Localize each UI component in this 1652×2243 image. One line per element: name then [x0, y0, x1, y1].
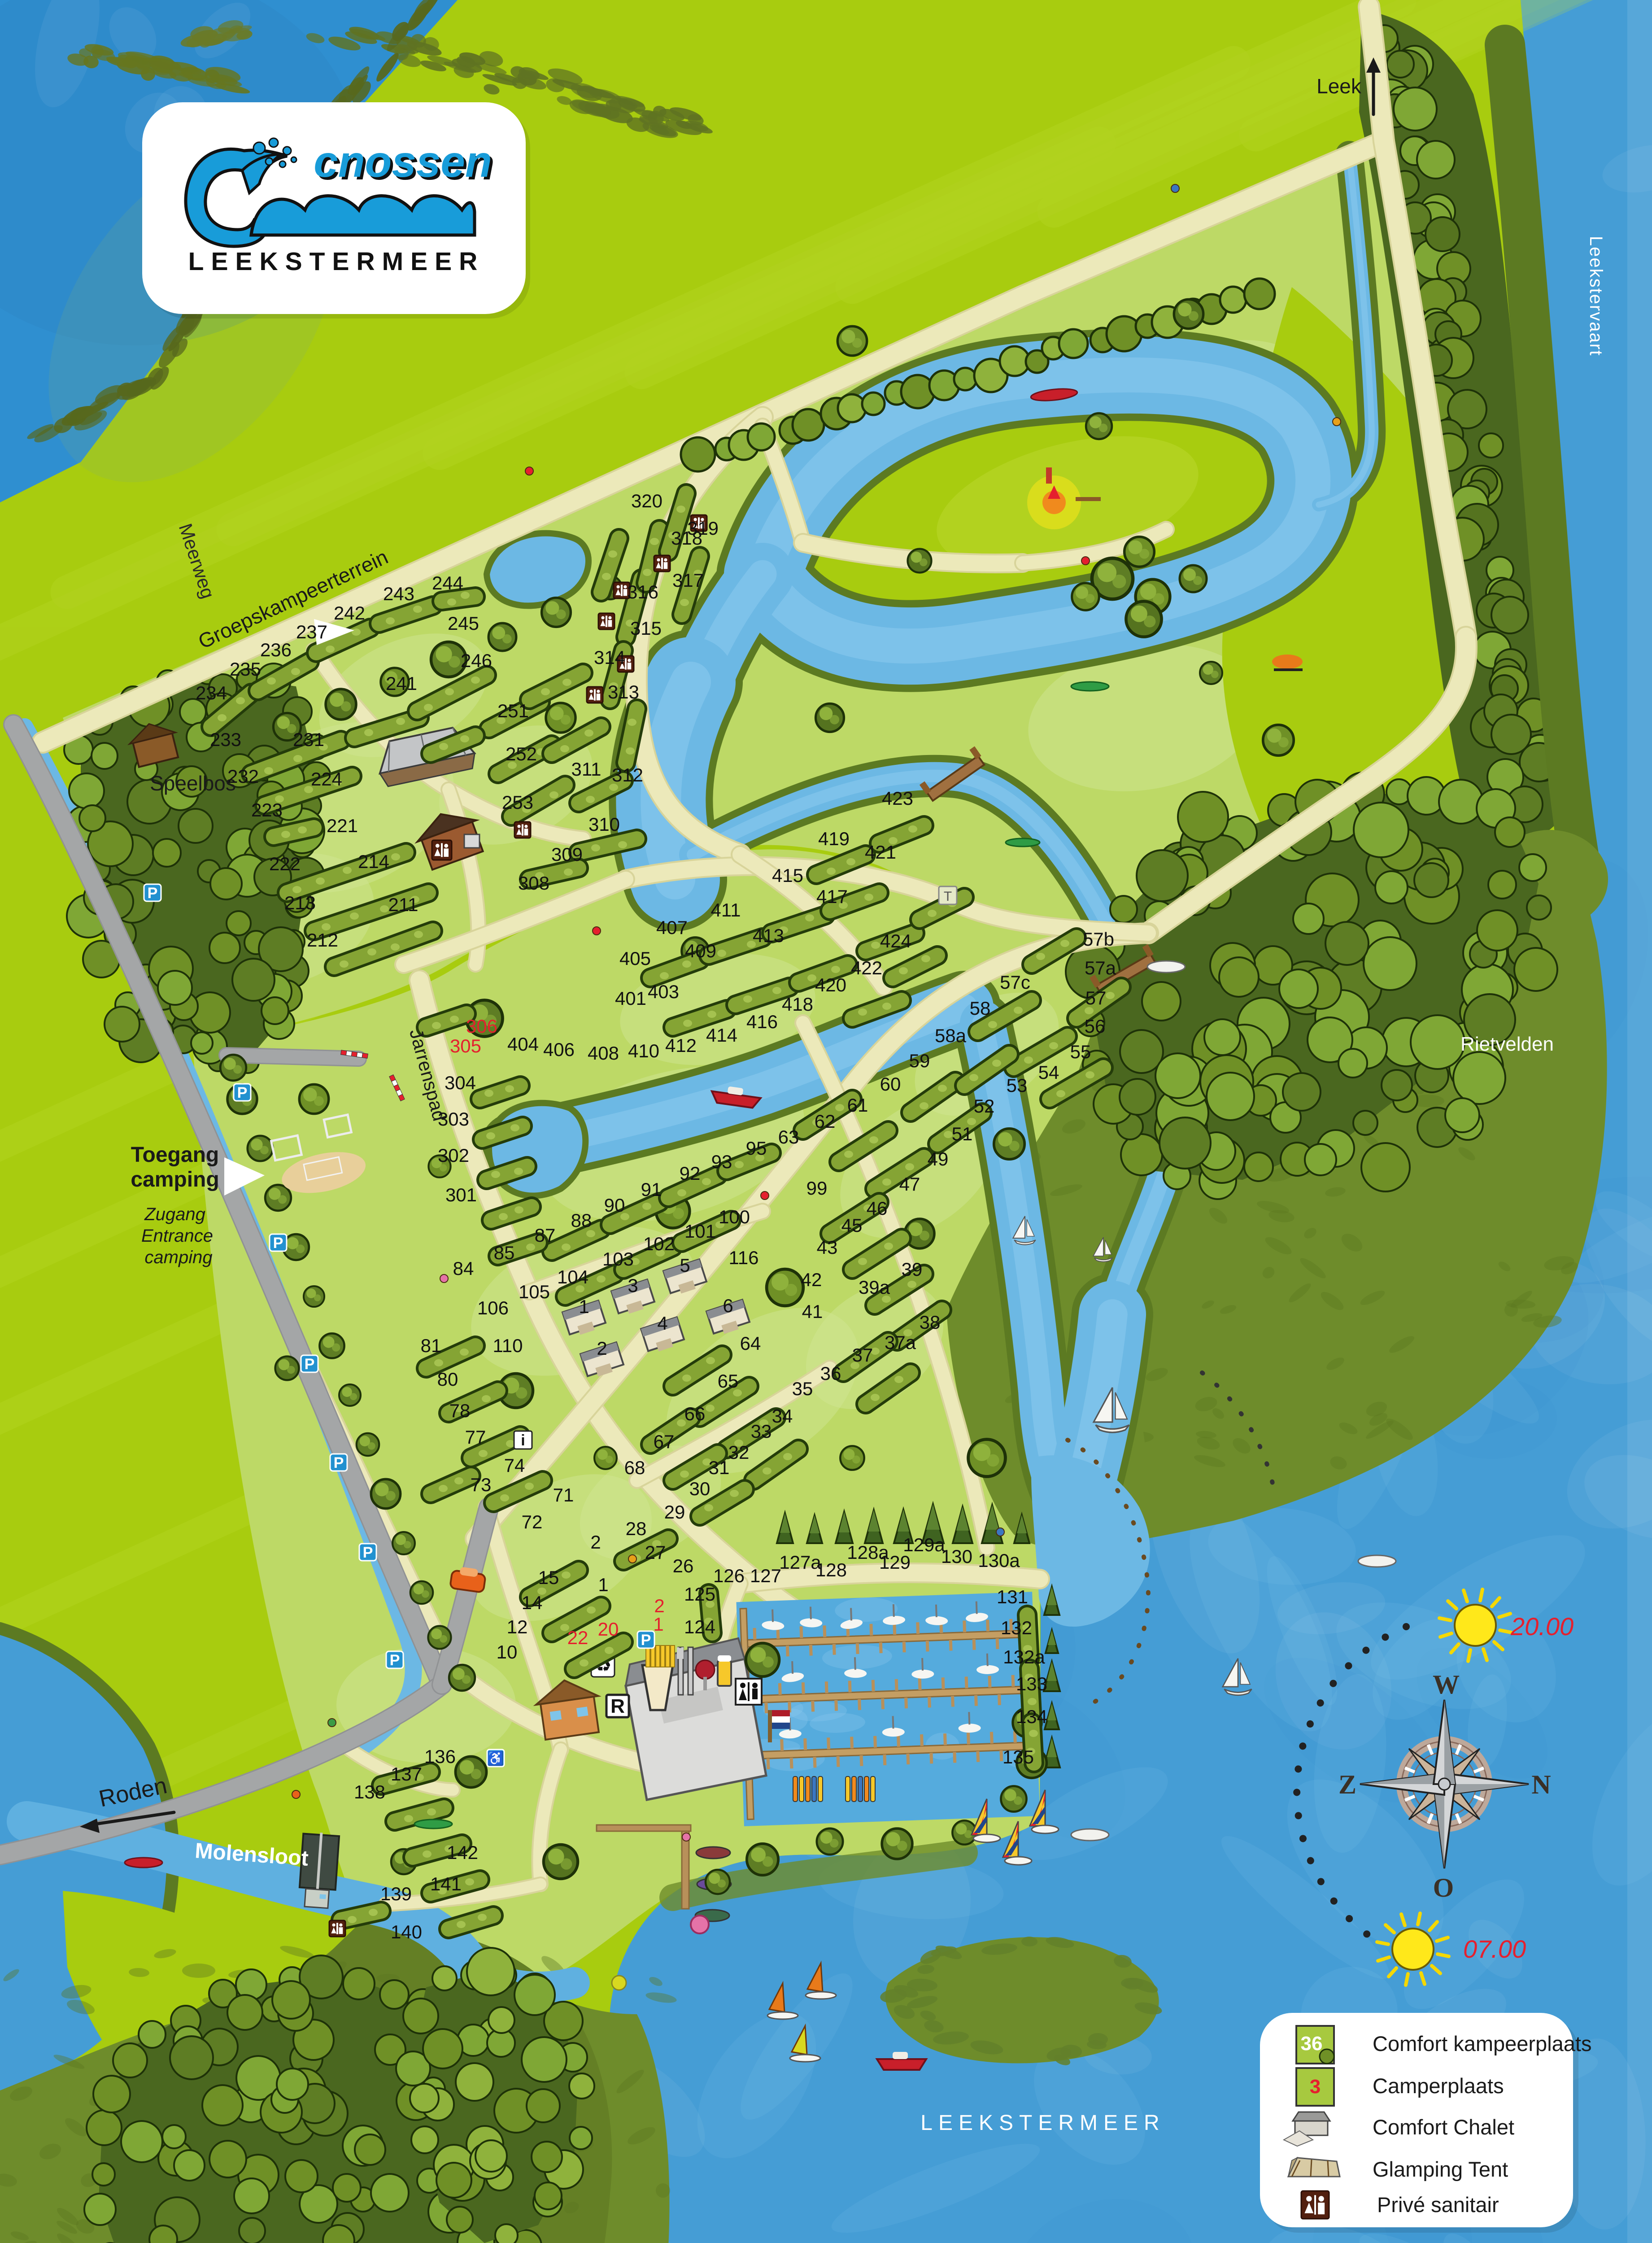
svg-text:LEEKSTERMEER: LEEKSTERMEER	[920, 2111, 1165, 2135]
svg-text:Zugang: Zugang	[144, 1204, 205, 1224]
svg-text:253: 253	[502, 792, 533, 813]
svg-text:241: 241	[386, 673, 417, 694]
svg-text:31: 31	[709, 1457, 730, 1478]
svg-text:2: 2	[654, 1595, 664, 1616]
svg-text:O: O	[1433, 1873, 1454, 1903]
svg-text:71: 71	[553, 1484, 574, 1506]
svg-text:N: N	[1531, 1770, 1551, 1799]
svg-text:416: 416	[746, 1011, 778, 1032]
svg-text:65: 65	[718, 1370, 739, 1392]
svg-text:10: 10	[497, 1641, 518, 1663]
svg-text:306: 306	[466, 1016, 497, 1037]
svg-text:135: 135	[1003, 1746, 1034, 1767]
svg-text:cnossen: cnossen	[314, 137, 492, 186]
svg-text:309: 309	[551, 844, 583, 865]
svg-text:84: 84	[453, 1258, 474, 1279]
svg-text:53: 53	[1007, 1075, 1028, 1096]
svg-text:64: 64	[740, 1333, 761, 1354]
svg-text:408: 408	[588, 1043, 619, 1064]
svg-text:214: 214	[358, 851, 389, 872]
svg-text:93: 93	[711, 1151, 732, 1172]
svg-text:137: 137	[391, 1763, 422, 1785]
svg-text:♿: ♿	[487, 1750, 504, 1766]
svg-text:camping: camping	[131, 1168, 219, 1191]
svg-text:304: 304	[445, 1072, 476, 1093]
svg-text:Toegang: Toegang	[131, 1143, 219, 1167]
svg-text:Glamping Tent: Glamping Tent	[1373, 2157, 1508, 2181]
svg-text:LEEKSTERMEER: LEEKSTERMEER	[188, 247, 485, 276]
svg-text:88: 88	[571, 1210, 592, 1231]
svg-text:Speelbos: Speelbos	[150, 772, 236, 795]
svg-text:20: 20	[598, 1619, 619, 1640]
svg-text:80: 80	[437, 1369, 458, 1390]
svg-text:58a: 58a	[935, 1025, 967, 1046]
svg-text:51: 51	[952, 1123, 973, 1144]
svg-text:78: 78	[449, 1400, 471, 1421]
svg-text:67: 67	[654, 1431, 675, 1452]
svg-text:P: P	[148, 885, 158, 902]
svg-text:105: 105	[519, 1281, 550, 1302]
svg-text:12: 12	[507, 1616, 528, 1637]
svg-text:406: 406	[543, 1039, 575, 1060]
svg-text:129a: 129a	[903, 1534, 945, 1555]
svg-text:27: 27	[645, 1542, 666, 1563]
svg-text:302: 302	[438, 1145, 469, 1166]
svg-text:74: 74	[504, 1455, 525, 1476]
svg-text:106: 106	[477, 1297, 509, 1318]
svg-text:243: 243	[383, 583, 414, 604]
svg-text:P: P	[305, 1356, 315, 1373]
svg-text:320: 320	[631, 490, 663, 511]
svg-text:Entrance: Entrance	[141, 1226, 213, 1246]
svg-text:103: 103	[602, 1248, 634, 1270]
svg-text:3: 3	[1310, 2076, 1321, 2098]
svg-text:422: 422	[851, 957, 882, 978]
svg-text:15: 15	[538, 1567, 559, 1588]
svg-text:213: 213	[284, 892, 316, 913]
svg-text:414: 414	[706, 1025, 737, 1046]
svg-text:58: 58	[970, 998, 991, 1019]
svg-text:36: 36	[1301, 2033, 1323, 2055]
svg-text:423: 423	[882, 788, 913, 809]
svg-text:57a: 57a	[1085, 957, 1116, 978]
svg-text:314: 314	[594, 647, 625, 668]
svg-text:410: 410	[628, 1040, 659, 1061]
svg-text:132: 132	[1001, 1617, 1032, 1638]
svg-text:313: 313	[608, 681, 639, 703]
svg-text:405: 405	[619, 948, 651, 969]
svg-text:6: 6	[723, 1295, 733, 1316]
svg-text:29: 29	[664, 1501, 685, 1523]
svg-text:39: 39	[902, 1259, 923, 1280]
svg-text:138: 138	[354, 1781, 385, 1802]
svg-text:242: 242	[334, 602, 365, 624]
svg-text:63: 63	[778, 1126, 799, 1148]
svg-text:P: P	[334, 1454, 344, 1471]
svg-text:404: 404	[507, 1034, 539, 1055]
svg-text:127: 127	[750, 1565, 781, 1586]
svg-text:5: 5	[680, 1255, 690, 1276]
svg-text:407: 407	[656, 917, 688, 938]
svg-text:30: 30	[689, 1478, 710, 1499]
svg-text:99: 99	[806, 1178, 828, 1199]
svg-text:20.00: 20.00	[1510, 1612, 1574, 1641]
svg-text:45: 45	[841, 1215, 863, 1236]
svg-text:235: 235	[230, 659, 261, 680]
svg-text:140: 140	[391, 1921, 422, 1942]
svg-text:124: 124	[684, 1616, 715, 1637]
svg-text:128: 128	[815, 1559, 847, 1580]
svg-text:49: 49	[928, 1148, 949, 1170]
svg-text:315: 315	[630, 618, 662, 639]
svg-text:301: 301	[445, 1184, 477, 1205]
svg-text:56: 56	[1085, 1016, 1106, 1037]
svg-text:2: 2	[597, 1338, 607, 1359]
svg-text:90: 90	[604, 1195, 625, 1216]
svg-text:316: 316	[627, 581, 658, 602]
svg-text:Privé sanitair: Privé sanitair	[1377, 2193, 1499, 2217]
svg-text:139: 139	[380, 1883, 412, 1904]
svg-text:101: 101	[684, 1221, 716, 1242]
svg-text:26: 26	[673, 1555, 694, 1576]
svg-text:Rietvelden: Rietvelden	[1460, 1033, 1554, 1055]
svg-text:303: 303	[438, 1108, 469, 1130]
svg-text:310: 310	[588, 814, 620, 835]
svg-text:R: R	[610, 1695, 625, 1717]
svg-text:W: W	[1433, 1670, 1460, 1699]
svg-text:Comfort kampeerplaats: Comfort kampeerplaats	[1373, 2032, 1591, 2055]
svg-text:43: 43	[817, 1237, 838, 1258]
svg-text:Comfort Chalet: Comfort Chalet	[1373, 2115, 1514, 2139]
svg-text:P: P	[237, 1084, 248, 1101]
svg-text:81: 81	[421, 1335, 442, 1356]
svg-text:85: 85	[494, 1242, 515, 1263]
svg-text:14: 14	[522, 1592, 543, 1613]
svg-text:221: 221	[327, 815, 358, 836]
svg-text:77: 77	[465, 1427, 486, 1448]
svg-text:110: 110	[493, 1335, 523, 1356]
svg-text:68: 68	[624, 1457, 645, 1478]
svg-text:22: 22	[567, 1627, 588, 1648]
svg-text:Leek: Leek	[1316, 74, 1362, 98]
svg-text:1: 1	[598, 1574, 608, 1595]
svg-text:4: 4	[657, 1313, 667, 1334]
svg-text:130a: 130a	[978, 1550, 1020, 1571]
svg-text:317: 317	[672, 570, 704, 591]
svg-text:419: 419	[818, 828, 850, 849]
svg-text:245: 245	[448, 613, 479, 634]
svg-text:237: 237	[296, 621, 327, 642]
svg-text:Camperplaats: Camperplaats	[1373, 2074, 1504, 2098]
svg-text:415: 415	[772, 865, 803, 886]
svg-text:233: 233	[210, 729, 241, 750]
svg-text:308: 308	[518, 873, 549, 894]
svg-text:34: 34	[772, 1405, 793, 1427]
svg-text:403: 403	[648, 981, 679, 1002]
svg-text:52: 52	[974, 1095, 995, 1117]
svg-text:311: 311	[571, 759, 602, 780]
svg-text:95: 95	[746, 1138, 767, 1159]
svg-text:42: 42	[801, 1269, 822, 1290]
svg-text:251: 251	[497, 700, 529, 721]
svg-text:116: 116	[729, 1247, 759, 1268]
svg-text:66: 66	[684, 1403, 706, 1424]
svg-text:401: 401	[615, 988, 646, 1009]
svg-text:232: 232	[227, 766, 259, 787]
svg-text:3: 3	[628, 1275, 638, 1296]
svg-text:37: 37	[852, 1344, 873, 1366]
svg-text:125: 125	[684, 1584, 715, 1605]
svg-text:36: 36	[820, 1363, 841, 1384]
svg-text:32: 32	[728, 1442, 750, 1463]
svg-text:211: 211	[388, 894, 418, 915]
svg-text:Z: Z	[1338, 1770, 1356, 1799]
svg-text:231: 231	[293, 729, 324, 750]
svg-text:i: i	[521, 1432, 525, 1449]
svg-text:412: 412	[665, 1035, 697, 1056]
svg-text:318: 318	[671, 528, 702, 549]
svg-text:39a: 39a	[859, 1277, 890, 1298]
svg-text:2: 2	[590, 1532, 601, 1553]
svg-text:134: 134	[1016, 1706, 1047, 1727]
svg-text:305: 305	[450, 1035, 481, 1056]
svg-text:camping: camping	[144, 1248, 212, 1267]
svg-text:35: 35	[792, 1378, 813, 1399]
svg-text:91: 91	[641, 1179, 662, 1200]
svg-text:224: 224	[311, 768, 342, 790]
svg-text:61: 61	[847, 1095, 868, 1116]
svg-text:59: 59	[909, 1050, 930, 1071]
svg-text:126: 126	[713, 1565, 745, 1586]
svg-text:57b: 57b	[1083, 929, 1114, 950]
svg-text:104: 104	[557, 1266, 588, 1287]
svg-text:P: P	[641, 1632, 651, 1649]
svg-text:1: 1	[579, 1296, 589, 1317]
svg-text:37a: 37a	[885, 1332, 916, 1353]
svg-text:234: 234	[196, 682, 227, 703]
svg-text:T: T	[944, 889, 952, 904]
svg-text:33: 33	[751, 1421, 772, 1442]
svg-text:417: 417	[816, 886, 848, 907]
svg-text:136: 136	[424, 1746, 456, 1767]
svg-text:312: 312	[612, 764, 643, 785]
svg-text:P: P	[390, 1652, 400, 1669]
svg-text:102: 102	[643, 1233, 675, 1254]
svg-text:54: 54	[1038, 1062, 1059, 1083]
svg-text:223: 223	[251, 799, 283, 820]
svg-text:132a: 132a	[1003, 1646, 1045, 1667]
svg-text:07.00: 07.00	[1463, 1935, 1526, 1963]
svg-text:Leekstervaart: Leekstervaart	[1586, 236, 1606, 356]
svg-text:73: 73	[471, 1474, 492, 1495]
svg-text:55: 55	[1070, 1041, 1091, 1062]
svg-text:222: 222	[269, 853, 301, 874]
svg-text:87: 87	[535, 1225, 556, 1246]
svg-text:413: 413	[753, 925, 784, 946]
svg-text:424: 424	[880, 930, 911, 951]
svg-text:P: P	[363, 1544, 373, 1561]
svg-text:1: 1	[653, 1614, 663, 1635]
svg-text:131: 131	[997, 1586, 1028, 1607]
svg-text:420: 420	[815, 974, 846, 995]
svg-text:28: 28	[626, 1518, 647, 1539]
svg-text:252: 252	[506, 743, 537, 764]
svg-text:411: 411	[711, 899, 741, 921]
svg-text:212: 212	[307, 929, 338, 951]
svg-text:72: 72	[522, 1511, 543, 1532]
svg-text:133: 133	[1016, 1673, 1047, 1694]
svg-text:P: P	[273, 1235, 283, 1252]
svg-text:141: 141	[430, 1873, 462, 1894]
svg-text:46: 46	[867, 1198, 888, 1219]
svg-text:244: 244	[432, 572, 463, 593]
svg-text:421: 421	[865, 842, 896, 863]
svg-text:92: 92	[680, 1163, 701, 1184]
svg-text:130: 130	[941, 1546, 972, 1567]
svg-text:57: 57	[1085, 987, 1107, 1008]
svg-text:62: 62	[815, 1111, 836, 1132]
svg-text:246: 246	[461, 650, 492, 671]
svg-text:142: 142	[447, 1842, 478, 1863]
svg-text:41: 41	[802, 1301, 823, 1322]
svg-text:60: 60	[880, 1073, 901, 1095]
svg-text:38: 38	[920, 1312, 941, 1333]
svg-text:418: 418	[782, 994, 813, 1015]
svg-text:236: 236	[260, 639, 292, 660]
svg-text:47: 47	[899, 1174, 920, 1195]
svg-text:409: 409	[685, 940, 716, 961]
svg-text:100: 100	[719, 1206, 750, 1227]
svg-text:57c: 57c	[1000, 972, 1030, 993]
